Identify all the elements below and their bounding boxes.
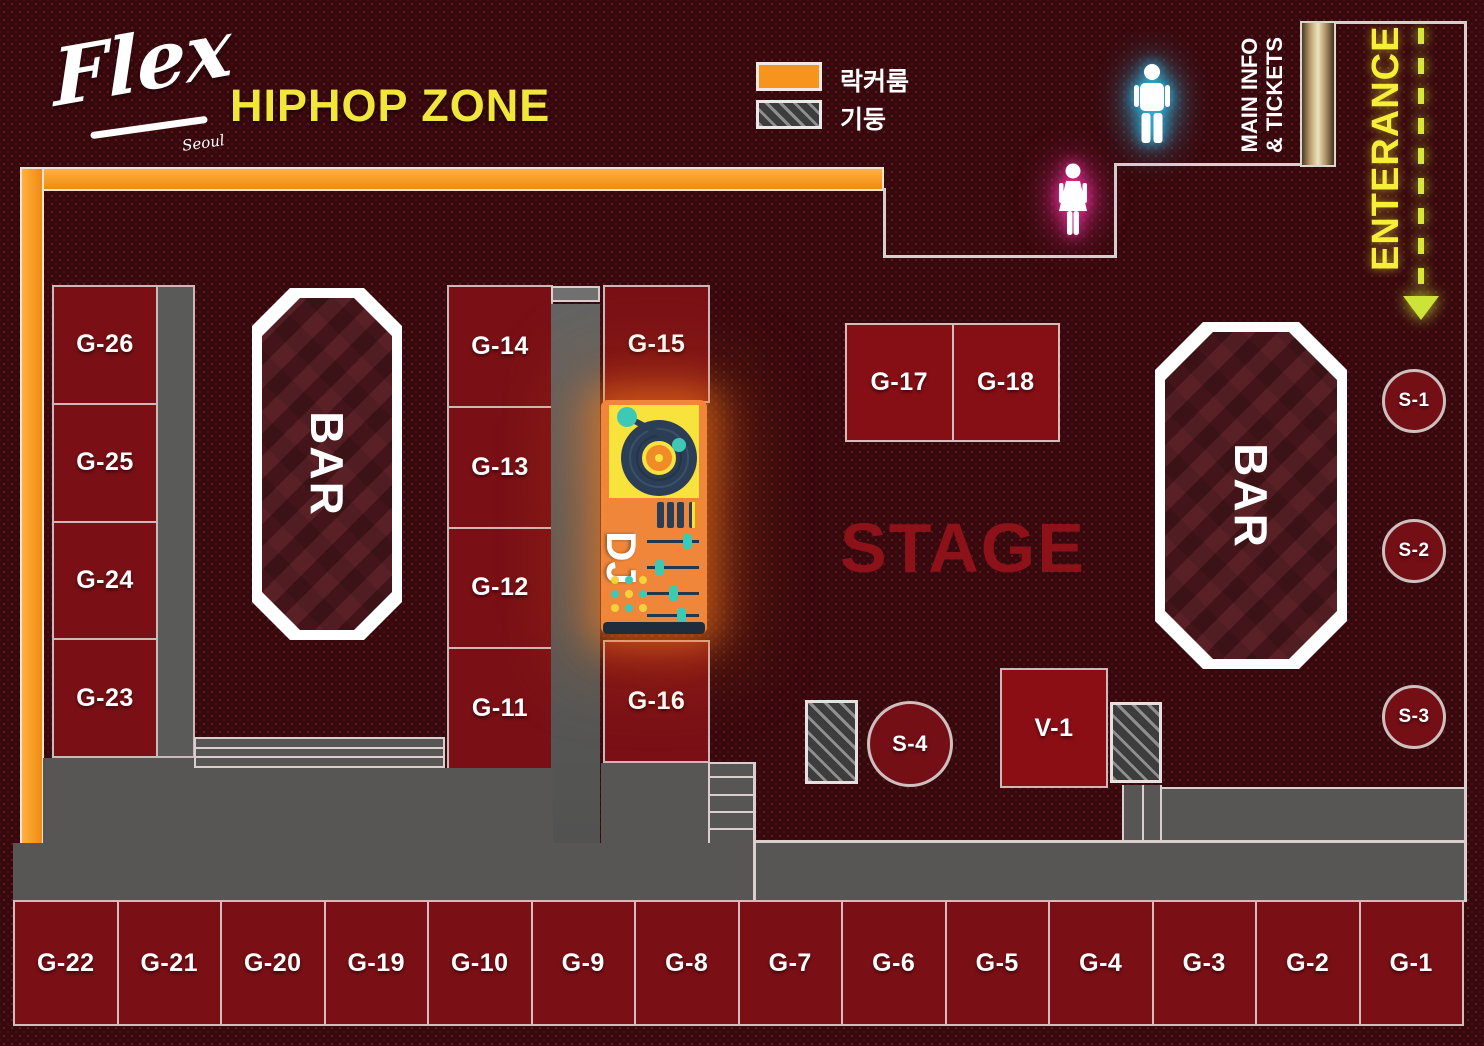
mixer-slider <box>647 540 701 544</box>
table-g-8[interactable]: G-8 <box>634 902 738 1024</box>
eq-bar <box>677 502 684 528</box>
table-g-4[interactable]: G-4 <box>1048 902 1152 1024</box>
walkway <box>43 758 194 844</box>
bar-left-label: BAR <box>300 411 354 517</box>
page-title: HIPHOP ZONE <box>230 80 550 132</box>
wall-line <box>1334 21 1466 24</box>
table-g-21[interactable]: G-21 <box>117 902 221 1024</box>
mixer-slider <box>647 566 701 570</box>
brand-logo: Flex Seoul <box>52 18 242 153</box>
table-g-22[interactable]: G-22 <box>15 902 117 1024</box>
wall-line <box>883 255 1117 258</box>
dj-booth-base <box>603 622 705 634</box>
table-g-20[interactable]: G-20 <box>220 902 324 1024</box>
main-info-sign: MAIN INFO & TICKETS <box>1235 19 1289 171</box>
bar-left: BAR <box>252 288 402 640</box>
table-v-1[interactable]: V-1 <box>1000 668 1108 788</box>
entrance-arrow-line <box>1418 28 1424 298</box>
seat-s-1[interactable]: S-1 <box>1382 369 1446 433</box>
seat-s-4[interactable]: S-4 <box>867 701 953 787</box>
pillar <box>1110 702 1162 783</box>
table-g-11[interactable]: G-11 <box>449 647 551 768</box>
turntable-icon <box>609 405 699 498</box>
stage-table-pair: G-17 G-18 <box>845 323 1060 442</box>
seat-s-2[interactable]: S-2 <box>1382 519 1446 583</box>
table-g-3[interactable]: G-3 <box>1152 902 1256 1024</box>
table-g-13[interactable]: G-13 <box>449 406 551 527</box>
table-g-26[interactable]: G-26 <box>54 287 156 403</box>
eq-bar <box>667 502 674 528</box>
locker-room-band-horizontal <box>20 167 884 191</box>
table-g-24[interactable]: G-24 <box>54 521 156 639</box>
walkway <box>194 768 445 844</box>
table-g-25[interactable]: G-25 <box>54 403 156 521</box>
pillar <box>805 700 858 784</box>
wall-line <box>883 188 886 258</box>
legend-pillar-swatch <box>756 100 822 129</box>
table-g-6[interactable]: G-6 <box>841 902 945 1024</box>
dj-booth: DJ <box>601 400 707 634</box>
locker-room-band-vertical <box>20 167 44 845</box>
corridor-cap <box>551 286 600 302</box>
legend-locker-swatch <box>756 62 822 91</box>
walkway <box>601 763 710 844</box>
table-g-16[interactable]: G-16 <box>603 640 710 763</box>
table-g-15[interactable]: G-15 <box>603 285 710 403</box>
bar-right-label: BAR <box>1224 443 1278 549</box>
table-g-5[interactable]: G-5 <box>945 902 1049 1024</box>
male-restroom-icon <box>1126 56 1178 154</box>
table-g-17[interactable]: G-17 <box>847 325 952 440</box>
wall-line <box>1114 163 1117 258</box>
button-grid <box>611 576 651 620</box>
mixer-slider <box>647 614 701 618</box>
table-g-19[interactable]: G-19 <box>324 902 428 1024</box>
stairs <box>708 762 755 846</box>
stage-label: STAGE <box>840 508 1065 588</box>
bar-right: BAR <box>1155 322 1347 669</box>
stairs <box>194 737 445 768</box>
entrance-arrow-head <box>1403 296 1439 320</box>
entrance-sign: ENTERANCE <box>1365 39 1409 271</box>
legend-pillar-label: 기둥 <box>840 100 886 136</box>
table-g-9[interactable]: G-9 <box>531 902 635 1024</box>
wall-line-right <box>1464 21 1467 902</box>
left-wall-strip <box>158 285 195 758</box>
table-g-23[interactable]: G-23 <box>54 638 156 756</box>
table-g-7[interactable]: G-7 <box>738 902 842 1024</box>
walkway <box>445 768 553 844</box>
club-floorplan: Flex Seoul HIPHOP ZONE 락커룸 기둥 MAIN INFO … <box>0 0 1484 1046</box>
stairs <box>1122 785 1162 843</box>
table-g-18[interactable]: G-18 <box>952 325 1059 440</box>
legend-locker-label: 락커룸 <box>840 62 909 98</box>
eq-bar <box>657 502 664 528</box>
bottom-table-row: G-22 G-21 G-20 G-19 G-10 G-9 G-8 G-7 G-6… <box>13 900 1464 1026</box>
eq-bars-icon <box>657 502 703 528</box>
ticket-desk <box>1300 21 1336 167</box>
table-g-1[interactable]: G-1 <box>1359 902 1463 1024</box>
main-info-line1: MAIN INFO <box>1237 38 1262 153</box>
brand-logo-sub: Seoul <box>181 131 226 155</box>
table-g-2[interactable]: G-2 <box>1255 902 1359 1024</box>
main-walkway <box>13 843 1464 900</box>
table-g-12[interactable]: G-12 <box>449 527 551 648</box>
brand-logo-text: Flex <box>52 2 234 125</box>
left-table-column: G-26 G-25 G-24 G-23 <box>52 285 158 758</box>
seat-s-3[interactable]: S-3 <box>1382 685 1446 749</box>
female-restroom-icon <box>1047 156 1099 248</box>
table-g-10[interactable]: G-10 <box>427 902 531 1024</box>
eq-bar-striped <box>689 502 699 528</box>
turntable-panel <box>609 405 699 498</box>
mid-table-column: G-14 G-13 G-12 G-11 <box>447 285 553 770</box>
mixer-slider <box>647 592 701 596</box>
main-info-line2: & TICKETS <box>1262 37 1287 153</box>
table-g-14[interactable]: G-14 <box>449 287 551 406</box>
wall-line <box>753 762 756 902</box>
walkway <box>1162 787 1464 843</box>
